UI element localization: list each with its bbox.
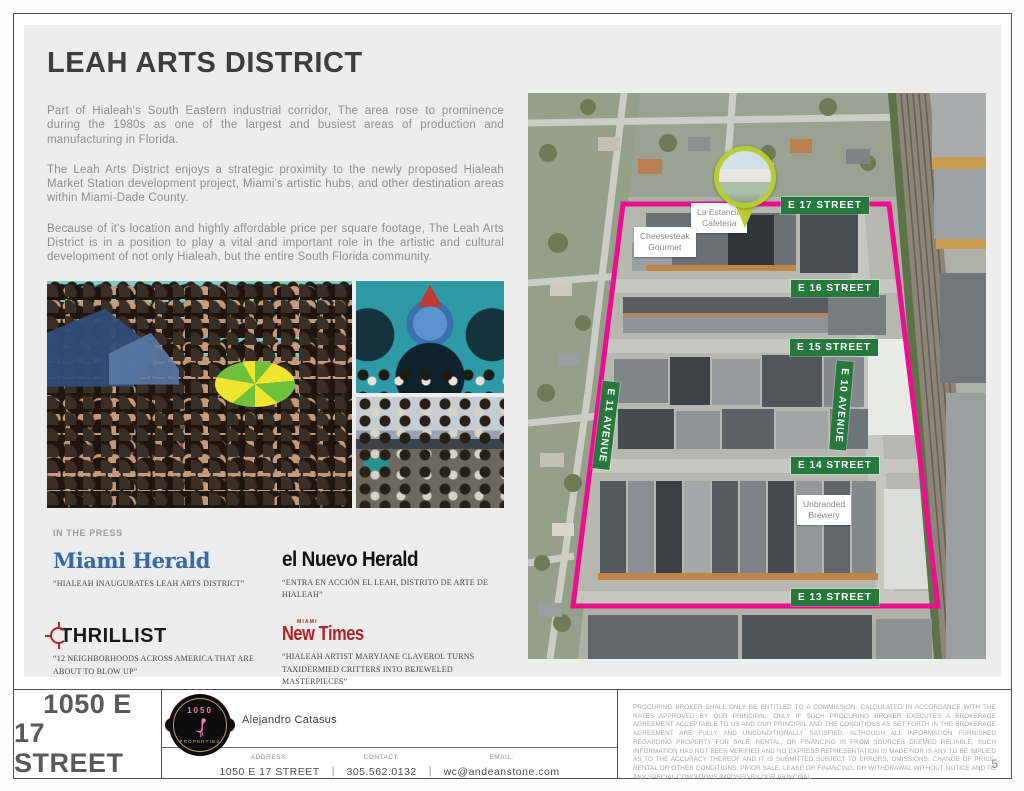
content-panel: LEAH ARTS DISTRICT Part of Hialeah's Sou…: [24, 25, 1001, 677]
street-sign-e14: E 14 STREET: [791, 457, 879, 474]
photo-side-column: [356, 281, 504, 508]
aerial-map: E 17 STREET E 16 STREET E 15 STREET E 14…: [528, 93, 986, 659]
map-pin: [714, 146, 776, 236]
new-times-logo: New Times: [282, 623, 364, 646]
footer-contact-card: Alejandro Catasus 1050 PROPERTIES ADDRES…: [162, 690, 618, 778]
mural-crown-shape: [418, 285, 442, 307]
flamingo-icon: [190, 716, 210, 738]
address-label: ADDRESS:: [251, 754, 288, 761]
contact-email: EMAIL: wc@andeanstone.com: [444, 754, 560, 778]
map-pin-photo: [719, 151, 771, 203]
press-item-el-nuevo-herald: el Nuevo Herald “ENTRA EN ACCIÓN EL LEAH…: [282, 548, 504, 602]
contact-address: ADDRESS: 1050 E 17 STREET: [219, 754, 319, 778]
press-section: IN THE PRESS Miami Herald “HIALEAH INAUG…: [47, 528, 504, 689]
press-item-thrillist: THRILLIST “12 NEIGHBORHOODS ACROSS AMERI…: [53, 619, 276, 688]
crosshair-icon: [48, 625, 69, 646]
press-grid: Miami Herald “HIALEAH INAUGURATES LEAH A…: [53, 548, 504, 689]
contact-phone: CONTACT: 305.562.0132: [347, 754, 417, 778]
contact-label: CONTACT:: [364, 754, 400, 761]
footer: 1050 E 17 STREET Alejandro Catasus 1050 …: [14, 689, 1011, 778]
festival-crowd-photo: [47, 281, 352, 508]
poi-label-unbranded-brewery: UnbrandedBrewery: [797, 495, 851, 525]
email-label: EMAIL:: [489, 754, 513, 761]
logo-properties-text: PROPERTIES: [180, 739, 221, 744]
contact-row: ADDRESS: 1050 E 17 STREET | CONTACT: 305…: [162, 748, 617, 778]
press-quote: “HIALEAH ARTIST MARYJANE CLAVEROL TURNS …: [282, 651, 504, 688]
properties-logo: 1050 PROPERTIES: [169, 694, 231, 756]
left-column: LEAH ARTS DISTRICT Part of Hialeah's Sou…: [47, 47, 504, 689]
blue-face-mural-photo: [356, 281, 504, 393]
logo-number: 1050: [187, 706, 213, 715]
intro-text: Part of Hialeah's South Eastern industri…: [47, 104, 504, 265]
intro-paragraph-1: Part of Hialeah's South Eastern industri…: [47, 104, 504, 147]
street-sign-e17: E 17 STREET: [781, 197, 869, 214]
property-title-line1: 1050 E: [43, 690, 132, 719]
phone-value: 305.562.0132: [347, 766, 417, 778]
press-quote: “HIALEAH INAUGURATES LEAH ARTS DISTRICT”: [53, 578, 276, 590]
el-nuevo-herald-logo: el Nuevo Herald: [282, 548, 418, 572]
legal-disclaimer-text: PROCURING BROKER SHALL ONLY BE ENTITLED …: [633, 704, 996, 782]
intro-paragraph-3: Because of it's location and highly affo…: [47, 222, 504, 265]
page-title: LEAH ARTS DISTRICT: [47, 47, 504, 80]
press-heading: IN THE PRESS: [53, 528, 504, 538]
email-value: wc@andeanstone.com: [444, 766, 560, 778]
press-quote: “ENTRA EN ACCIÓN EL LEAH, DISTRITO DE AR…: [282, 577, 504, 602]
poi-label-cheesesteak: CheesesteakGourmet: [634, 227, 696, 257]
page-frame: LEAH ARTS DISTRICT Part of Hialeah's Sou…: [13, 13, 1012, 779]
address-value: 1050 E 17 STREET: [219, 766, 319, 778]
umbrella-shape: [215, 361, 295, 407]
photo-collage: [47, 281, 504, 508]
street-sign-e16: E 16 STREET: [791, 280, 879, 297]
legal-disclaimer-area: PROCURING BROKER SHALL ONLY BE ENTITLED …: [618, 690, 1011, 778]
thrillist-logo: THRILLIST: [53, 625, 276, 648]
street-sign-e15: E 15 STREET: [790, 339, 878, 356]
separator: |: [429, 765, 432, 778]
page-number: 5: [991, 757, 998, 771]
street-sign-e13: E 13 STREET: [791, 589, 879, 606]
press-item-miami-herald: Miami Herald “HIALEAH INAUGURATES LEAH A…: [53, 548, 276, 602]
street-crowd-photo: [356, 397, 504, 508]
property-address-title: 1050 E 17 STREET: [14, 690, 162, 778]
separator: |: [332, 765, 335, 778]
agent-name: Alejandro Catasus: [242, 714, 337, 726]
miami-herald-logo: Miami Herald: [53, 548, 276, 573]
intro-paragraph-2: The Leah Arts District enjoys a strategi…: [47, 163, 504, 206]
press-item-new-times: MIAMI New Times “HIALEAH ARTIST MARYJANE…: [282, 619, 504, 688]
mural-people-row: [356, 367, 504, 393]
property-title-line2: 17 STREET: [14, 719, 161, 777]
press-quote: “12 NEIGHBORHOODS ACROSS AMERICA THAT AR…: [53, 653, 276, 678]
